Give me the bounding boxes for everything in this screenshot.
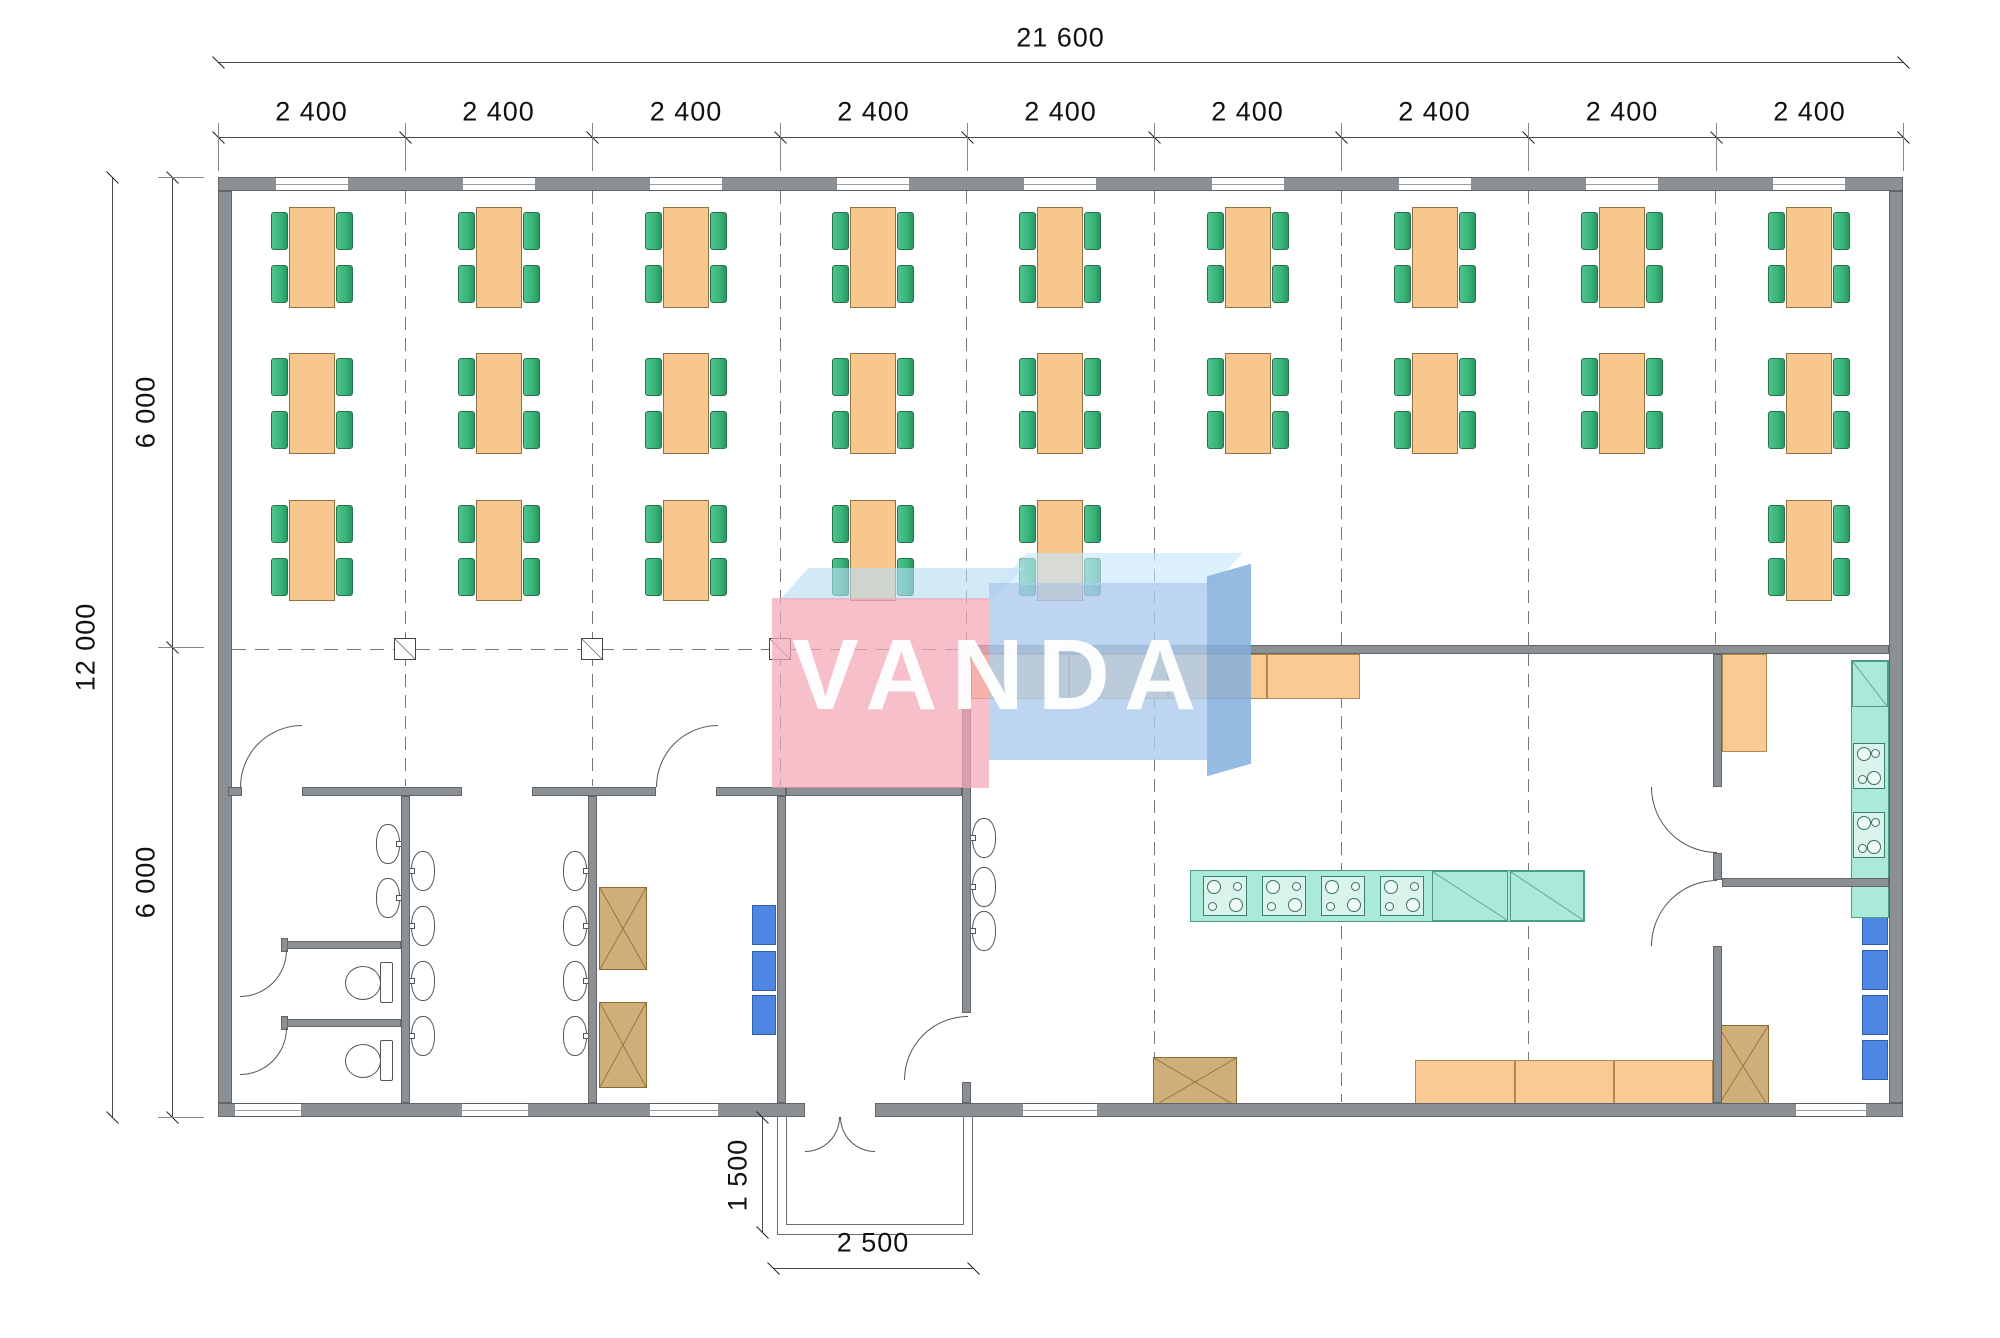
dimension-label-bay: 2 400: [462, 97, 535, 128]
chair: [458, 212, 475, 250]
wall-segment: [588, 796, 597, 1103]
wall-segment: [1713, 946, 1722, 1103]
storage-cabinet-x: [1717, 1025, 1769, 1107]
wall-segment: [532, 787, 656, 796]
chair: [1019, 558, 1036, 596]
window-glazing-line: [650, 184, 722, 185]
dimension-label-bay: 2 400: [650, 97, 723, 128]
chair: [1207, 265, 1224, 303]
storage-cabinet-x: [599, 1002, 647, 1088]
dimension-line: [218, 62, 1903, 63]
stove-burner-icon: [1267, 902, 1276, 911]
chair: [336, 358, 353, 396]
chair: [1394, 212, 1411, 250]
stove-burner-icon: [1406, 898, 1420, 912]
chair: [1768, 558, 1785, 596]
dimension-witness: [158, 1117, 204, 1118]
stove-burner-icon: [1871, 818, 1880, 827]
chair: [1207, 358, 1224, 396]
stove-burner-icon: [1266, 880, 1280, 894]
dining-table: [1786, 353, 1832, 454]
stove-burner-icon: [1325, 880, 1339, 894]
wall-segment: [1713, 853, 1722, 880]
stove-burner-icon: [1347, 898, 1361, 912]
window-glazing-line: [1586, 184, 1658, 185]
dimension-label-bay: 2 400: [275, 97, 348, 128]
dimension-witness: [780, 123, 781, 171]
chair: [710, 358, 727, 396]
chair: [832, 265, 849, 303]
chair: [1768, 411, 1785, 449]
wall-segment: [228, 787, 242, 796]
dimension-witness: [1903, 123, 1904, 171]
chair: [710, 505, 727, 543]
dimension-witness: [158, 647, 204, 648]
wall-segment: [962, 1082, 971, 1103]
dining-table: [1037, 500, 1083, 601]
stove-burner-icon: [1385, 902, 1394, 911]
stove-burner-icon: [1867, 840, 1881, 854]
dimension-label-porch-width: 2 500: [837, 1228, 910, 1259]
chair: [1833, 411, 1850, 449]
dining-table: [850, 500, 896, 601]
dining-table: [1412, 207, 1458, 308]
wall-segment: [1722, 878, 1889, 887]
chair: [832, 505, 849, 543]
chair: [1833, 358, 1850, 396]
chair: [1581, 265, 1598, 303]
window-opening: [1399, 177, 1471, 191]
dimension-witness: [1528, 123, 1529, 171]
chair: [271, 212, 288, 250]
toilet-tank: [380, 1040, 393, 1081]
chair: [710, 558, 727, 596]
chair: [1019, 358, 1036, 396]
stove-burner-icon: [1326, 902, 1335, 911]
wall-segment: [786, 787, 962, 796]
chair: [710, 411, 727, 449]
chair: [1207, 212, 1224, 250]
dining-table: [1786, 207, 1832, 308]
chair: [897, 558, 914, 596]
door-arc: [656, 725, 718, 787]
prep-sink-unit: [1432, 871, 1508, 921]
dining-table: [1225, 207, 1271, 308]
prep-sink-unit: [1852, 661, 1888, 707]
wall-segment: [962, 654, 971, 1013]
counter-divider: [1613, 1061, 1615, 1106]
serving-counter: [1722, 654, 1767, 752]
chair: [336, 558, 353, 596]
window-opening: [1212, 177, 1284, 191]
dimension-witness: [967, 123, 968, 171]
stove-burner-icon: [1384, 880, 1398, 894]
chair: [832, 358, 849, 396]
storage-cabinet-x: [1153, 1057, 1237, 1107]
column-marker: [581, 638, 603, 660]
dimension-witness: [158, 177, 204, 178]
dining-table: [476, 207, 522, 308]
chair: [1646, 265, 1663, 303]
chair: [271, 265, 288, 303]
dimension-witness: [218, 123, 219, 171]
chair: [1768, 505, 1785, 543]
window-opening: [463, 177, 535, 191]
dining-table: [1225, 353, 1271, 454]
chair: [458, 411, 475, 449]
chair: [523, 212, 540, 250]
chair: [271, 505, 288, 543]
chair: [523, 358, 540, 396]
chair: [1581, 411, 1598, 449]
dimension-witness: [1716, 123, 1717, 171]
window-opening: [1796, 1103, 1866, 1117]
chair: [1768, 265, 1785, 303]
chair: [1394, 411, 1411, 449]
chair: [1833, 212, 1850, 250]
chair: [1272, 265, 1289, 303]
chair: [1768, 358, 1785, 396]
chair: [832, 558, 849, 596]
locker-unit: [752, 995, 776, 1035]
wall-segment: [962, 645, 1889, 654]
wall-segment: [302, 787, 462, 796]
locker-unit: [1862, 1040, 1888, 1080]
door-arc: [240, 950, 287, 997]
chair: [1646, 358, 1663, 396]
dimension-label-bay: 2 400: [1773, 97, 1846, 128]
dimension-label-bay: 2 400: [1586, 97, 1659, 128]
chair: [458, 358, 475, 396]
wall-segment: [1713, 654, 1722, 787]
chair: [336, 505, 353, 543]
chair: [336, 411, 353, 449]
chair: [645, 411, 662, 449]
storage-cabinet-x: [599, 887, 647, 970]
window-opening: [650, 177, 722, 191]
chair: [1084, 358, 1101, 396]
chair: [645, 212, 662, 250]
chair: [1459, 212, 1476, 250]
chair: [897, 411, 914, 449]
chair: [1768, 212, 1785, 250]
prep-sink-unit: [1510, 871, 1584, 921]
floor-plan-canvas: 21 6002 4002 4002 4002 4002 4002 4002 40…: [0, 0, 2000, 1338]
dining-table: [663, 353, 709, 454]
chair: [1272, 358, 1289, 396]
dimension-label-porch-depth: 1 500: [723, 1138, 754, 1211]
chair: [523, 411, 540, 449]
window-opening: [837, 177, 909, 191]
chair: [832, 212, 849, 250]
dimension-label-total-width: 21 600: [1016, 23, 1105, 54]
toilet: [345, 1044, 381, 1078]
door-arc: [240, 1028, 287, 1075]
column-marker: [769, 638, 791, 660]
dining-table: [663, 500, 709, 601]
chair: [1833, 558, 1850, 596]
chair: [1394, 265, 1411, 303]
window-glazing-line: [463, 184, 535, 185]
chair: [523, 558, 540, 596]
counter-divider: [1266, 655, 1268, 698]
stove-burner-icon: [1351, 882, 1360, 891]
window-opening: [1586, 177, 1658, 191]
chair: [1084, 265, 1101, 303]
stove-burner-icon: [1410, 882, 1419, 891]
door-arc: [904, 1016, 968, 1080]
serving-counter: [1415, 1060, 1713, 1107]
dimension-label-half: 6 000: [131, 846, 162, 919]
locker-unit: [1862, 950, 1888, 990]
chair: [336, 265, 353, 303]
window-opening: [235, 1103, 301, 1117]
wall-segment: [777, 796, 786, 1103]
wall-segment: [1889, 191, 1903, 1103]
window-glazing-line: [276, 184, 348, 185]
chair: [271, 411, 288, 449]
window-glazing-line: [1024, 184, 1096, 185]
dimension-witness: [1154, 123, 1155, 171]
dimension-label-half: 6 000: [131, 376, 162, 449]
dining-table: [289, 500, 335, 601]
dining-table: [850, 207, 896, 308]
module-grid-line: [780, 191, 781, 786]
window-glazing-line: [235, 1110, 301, 1111]
chair: [271, 558, 288, 596]
dimension-label-total-height: 12 000: [71, 603, 102, 692]
stove-burner-icon: [1857, 816, 1871, 830]
module-grid-line: [966, 191, 967, 644]
stove-burner-icon: [1871, 749, 1880, 758]
window-opening: [1773, 177, 1845, 191]
chair: [1084, 558, 1101, 596]
window-opening: [462, 1103, 528, 1117]
dimension-witness: [592, 123, 593, 171]
toilet-tank: [380, 962, 393, 1003]
dining-table: [1412, 353, 1458, 454]
chair: [1581, 212, 1598, 250]
door-arc: [1651, 880, 1717, 946]
wall-segment: [716, 787, 786, 796]
dining-table: [850, 353, 896, 454]
dimension-line: [762, 1117, 763, 1232]
chair: [1272, 411, 1289, 449]
chair: [458, 265, 475, 303]
stove-burner-icon: [1867, 771, 1881, 785]
door-arc: [1651, 787, 1717, 853]
dining-table: [1037, 353, 1083, 454]
stove-burner-icon: [1207, 880, 1221, 894]
stove-burner-icon: [1233, 882, 1242, 891]
window-glazing-line: [462, 1110, 528, 1111]
chair: [523, 265, 540, 303]
window-glazing-line: [1212, 184, 1284, 185]
chair: [1646, 411, 1663, 449]
dimension-label-bay: 2 400: [1398, 97, 1471, 128]
module-grid-line: [592, 191, 593, 786]
dimension-label-bay: 2 400: [837, 97, 910, 128]
dining-table: [1599, 207, 1645, 308]
dining-table: [1786, 500, 1832, 601]
dining-table: [289, 207, 335, 308]
chair: [645, 358, 662, 396]
counter-divider: [1167, 655, 1169, 698]
chair: [1019, 411, 1036, 449]
window-glazing-line: [1796, 1110, 1866, 1111]
serving-counter: [971, 654, 1360, 699]
chair: [1019, 265, 1036, 303]
stove-burner-icon: [1208, 902, 1217, 911]
dimension-line: [773, 1268, 973, 1269]
chair: [523, 505, 540, 543]
door-arc: [240, 725, 302, 787]
chair: [458, 505, 475, 543]
counter-divider: [1068, 655, 1070, 698]
chair: [1272, 212, 1289, 250]
dining-table: [1037, 207, 1083, 308]
dining-table: [1599, 353, 1645, 454]
chair: [1084, 505, 1101, 543]
stove-burner-icon: [1858, 775, 1867, 784]
chair: [645, 505, 662, 543]
wall-segment: [287, 941, 401, 949]
chair: [897, 212, 914, 250]
chair: [710, 265, 727, 303]
locker-unit: [752, 905, 776, 945]
chair: [1459, 358, 1476, 396]
window-glazing-line: [1023, 1110, 1097, 1111]
floor-plan: 21 6002 4002 4002 4002 4002 4002 4002 40…: [0, 0, 2000, 1338]
stove-burner-icon: [1229, 898, 1243, 912]
chair: [1581, 358, 1598, 396]
window-glazing-line: [650, 1110, 718, 1111]
locker-unit: [752, 951, 776, 991]
stove-burner-icon: [1858, 844, 1867, 853]
toilet: [345, 966, 381, 1000]
dimension-witness: [405, 123, 406, 171]
stove-burner-icon: [1288, 898, 1302, 912]
chair: [1833, 505, 1850, 543]
wall-segment: [401, 796, 410, 1103]
chair: [271, 358, 288, 396]
chair: [1084, 411, 1101, 449]
dimension-line: [112, 177, 113, 1117]
counter-divider: [1514, 1061, 1516, 1106]
chair: [645, 265, 662, 303]
dining-table: [476, 353, 522, 454]
chair: [1459, 411, 1476, 449]
chair: [1084, 212, 1101, 250]
dimension-line: [218, 137, 1903, 138]
chair: [1394, 358, 1411, 396]
dimension-witness: [1341, 123, 1342, 171]
chair: [1833, 265, 1850, 303]
chair: [1646, 212, 1663, 250]
chair: [832, 411, 849, 449]
chair: [645, 558, 662, 596]
window-glazing-line: [1773, 184, 1845, 185]
dining-table: [663, 207, 709, 308]
window-opening: [1023, 1103, 1097, 1117]
dimension-label-bay: 2 400: [1211, 97, 1284, 128]
chair: [458, 558, 475, 596]
dining-table: [476, 500, 522, 601]
chair: [897, 505, 914, 543]
wall-segment: [218, 191, 232, 1103]
window-opening: [276, 177, 348, 191]
dining-table: [289, 353, 335, 454]
dimension-label-bay: 2 400: [1024, 97, 1097, 128]
module-grid-line: [1715, 191, 1716, 644]
chair: [1207, 411, 1224, 449]
chair: [1019, 505, 1036, 543]
stove-burner-icon: [1292, 882, 1301, 891]
chair: [1459, 265, 1476, 303]
window-opening: [650, 1103, 718, 1117]
chair: [336, 212, 353, 250]
chair: [1019, 212, 1036, 250]
wall-segment: [287, 1019, 401, 1027]
column-marker: [394, 638, 416, 660]
stove-burner-icon: [1857, 747, 1871, 761]
locker-unit: [1862, 995, 1888, 1035]
window-glazing-line: [837, 184, 909, 185]
window-opening: [1024, 177, 1096, 191]
chair: [897, 358, 914, 396]
window-glazing-line: [1399, 184, 1471, 185]
chair: [897, 265, 914, 303]
chair: [710, 212, 727, 250]
module-grid-line: [405, 191, 406, 786]
